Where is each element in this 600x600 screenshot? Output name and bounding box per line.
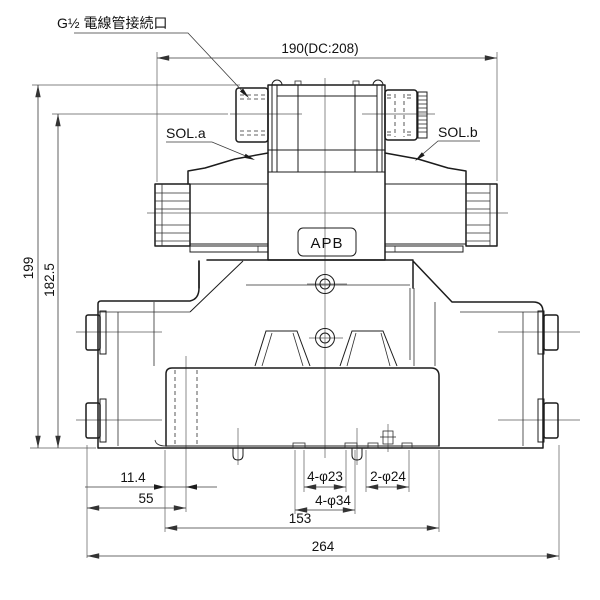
model-badge-text: APB xyxy=(310,235,343,252)
centerlines xyxy=(76,78,580,512)
dimension-11-4: 11.4 xyxy=(85,450,217,492)
valve-center-block: APB xyxy=(268,80,385,260)
manual-override-knob xyxy=(418,92,427,138)
technical-drawing-canvas: APB xyxy=(0,0,600,600)
port-cavity-right xyxy=(340,331,397,366)
conduit-label: G½ 電線管接続口 xyxy=(57,15,167,31)
solenoid-a-base-bar xyxy=(190,246,268,252)
solenoid-valve-outline-drawing: APB xyxy=(0,0,600,600)
dim-mount-holes: 4-φ23 xyxy=(307,469,343,484)
dim-hole-offset-small: 11.4 xyxy=(120,470,146,485)
coil-frame-lines xyxy=(268,85,385,172)
dimension-2-phi24: 2-φ24 xyxy=(366,450,409,492)
conduit-box-right xyxy=(385,90,417,140)
callout-sol-b: SOL.b xyxy=(415,124,480,161)
mounting-plate xyxy=(155,368,439,446)
dim-overall-height: 199 xyxy=(21,257,36,280)
sol-a-label: SOL.a xyxy=(166,125,206,141)
port-boss-right-lower xyxy=(538,399,558,442)
left-chamfer-edge xyxy=(190,261,243,312)
port-boss-right-upper xyxy=(538,311,558,354)
dim-hole-offset: 55 xyxy=(138,491,153,506)
valve-body-casting xyxy=(86,260,558,460)
conduit-box-left xyxy=(236,88,268,142)
solenoid-b-base-bar xyxy=(385,246,463,252)
port-boss-left-upper xyxy=(86,311,106,354)
solenoid-b-tube xyxy=(385,184,466,244)
solenoid-a-yoke xyxy=(188,153,268,184)
dim-plate-width: 153 xyxy=(289,511,312,526)
conduit-right-threads xyxy=(387,94,414,137)
dimension-153: 153 xyxy=(165,450,439,532)
dimension-190: 190(DC:208) xyxy=(157,41,497,182)
dim-counterbores: 4-φ34 xyxy=(315,493,351,508)
dim-side-holes: 2-φ24 xyxy=(370,469,406,484)
sol-b-label: SOL.b xyxy=(438,124,478,140)
callout-conduit: G½ 電線管接続口 xyxy=(57,15,249,98)
dimension-182-5: 182.5 xyxy=(42,114,228,448)
dim-overall-width: 264 xyxy=(312,539,335,554)
solenoid-b-yoke xyxy=(385,153,466,184)
port-boss-left-lower xyxy=(86,399,106,442)
dim-conduit-height: 182.5 xyxy=(42,263,57,297)
solenoid-a-tube xyxy=(188,184,268,244)
dimension-55: 55 xyxy=(87,445,186,558)
dim-top-width: 190(DC:208) xyxy=(281,41,358,56)
port-cavity-left xyxy=(255,331,310,366)
conduit-left-threads xyxy=(240,95,266,135)
solenoid-a-assembly xyxy=(155,88,268,252)
